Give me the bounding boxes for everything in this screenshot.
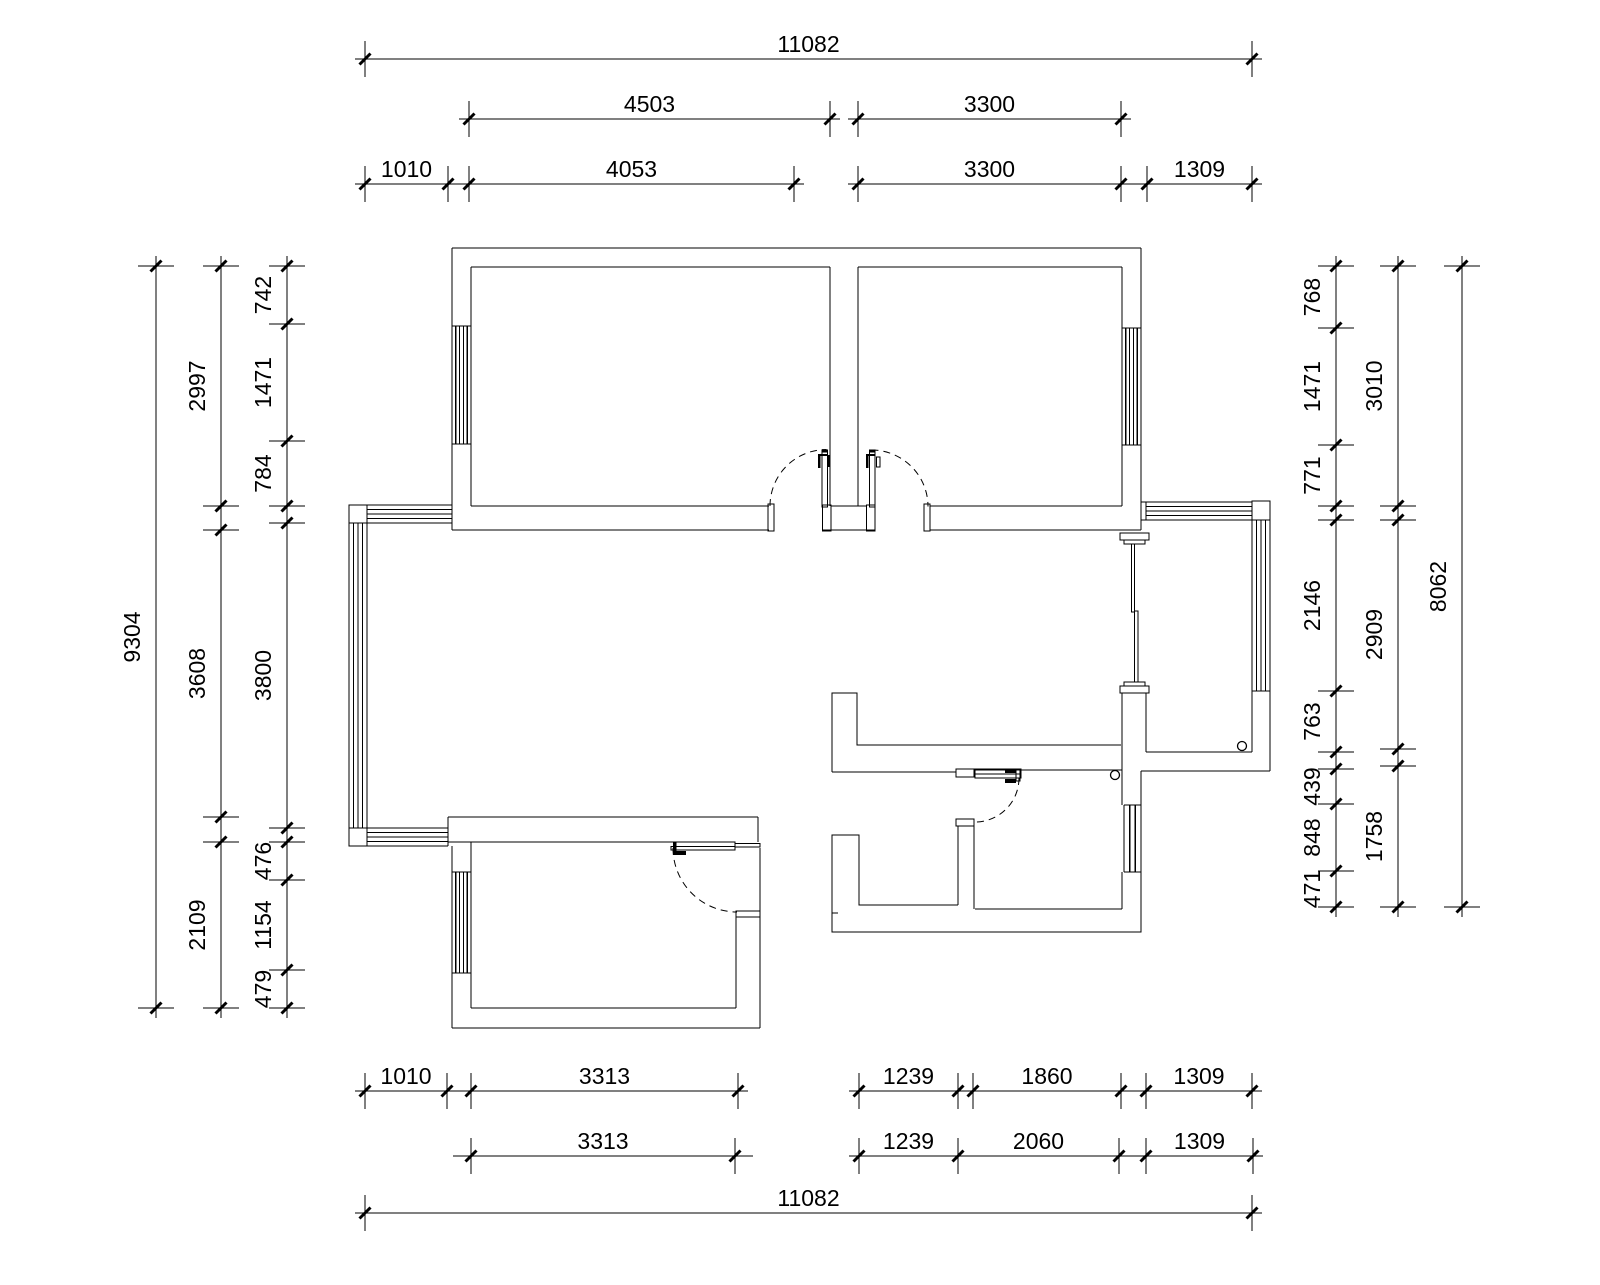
svg-text:9304: 9304 — [119, 611, 145, 662]
svg-text:8062: 8062 — [1425, 561, 1451, 612]
svg-text:2997: 2997 — [184, 360, 210, 411]
svg-text:2060: 2060 — [1013, 1128, 1064, 1154]
svg-text:763: 763 — [1299, 702, 1325, 740]
svg-text:1860: 1860 — [1021, 1063, 1072, 1089]
svg-text:439: 439 — [1299, 767, 1325, 805]
svg-text:1471: 1471 — [1299, 361, 1325, 412]
svg-text:742: 742 — [250, 276, 276, 314]
svg-text:11082: 11082 — [777, 1185, 839, 1211]
svg-text:3300: 3300 — [964, 91, 1015, 117]
svg-text:1010: 1010 — [381, 156, 432, 182]
svg-text:3608: 3608 — [184, 648, 210, 699]
svg-text:768: 768 — [1299, 278, 1325, 316]
svg-text:1758: 1758 — [1361, 811, 1387, 862]
svg-text:4053: 4053 — [606, 156, 657, 182]
svg-text:1309: 1309 — [1173, 1063, 1224, 1089]
svg-text:1309: 1309 — [1174, 1128, 1225, 1154]
svg-text:771: 771 — [1299, 456, 1325, 494]
svg-text:1239: 1239 — [883, 1063, 934, 1089]
svg-text:1154: 1154 — [250, 900, 276, 950]
svg-text:471: 471 — [1299, 870, 1325, 908]
svg-text:3313: 3313 — [579, 1063, 630, 1089]
svg-text:2146: 2146 — [1299, 580, 1325, 631]
svg-text:2909: 2909 — [1361, 609, 1387, 660]
svg-text:1239: 1239 — [883, 1128, 934, 1154]
svg-text:784: 784 — [250, 454, 276, 493]
svg-text:3300: 3300 — [964, 156, 1015, 182]
svg-text:4503: 4503 — [624, 91, 675, 117]
svg-text:11082: 11082 — [777, 31, 839, 57]
svg-text:476: 476 — [250, 842, 276, 880]
svg-text:848: 848 — [1299, 818, 1325, 856]
svg-text:479: 479 — [250, 970, 276, 1008]
svg-text:2109: 2109 — [184, 899, 210, 950]
svg-text:3313: 3313 — [577, 1128, 628, 1154]
svg-text:1471: 1471 — [250, 357, 276, 408]
svg-text:3010: 3010 — [1361, 360, 1387, 411]
svg-text:1309: 1309 — [1174, 156, 1225, 182]
svg-text:1010: 1010 — [380, 1063, 431, 1089]
svg-text:3800: 3800 — [250, 650, 276, 701]
